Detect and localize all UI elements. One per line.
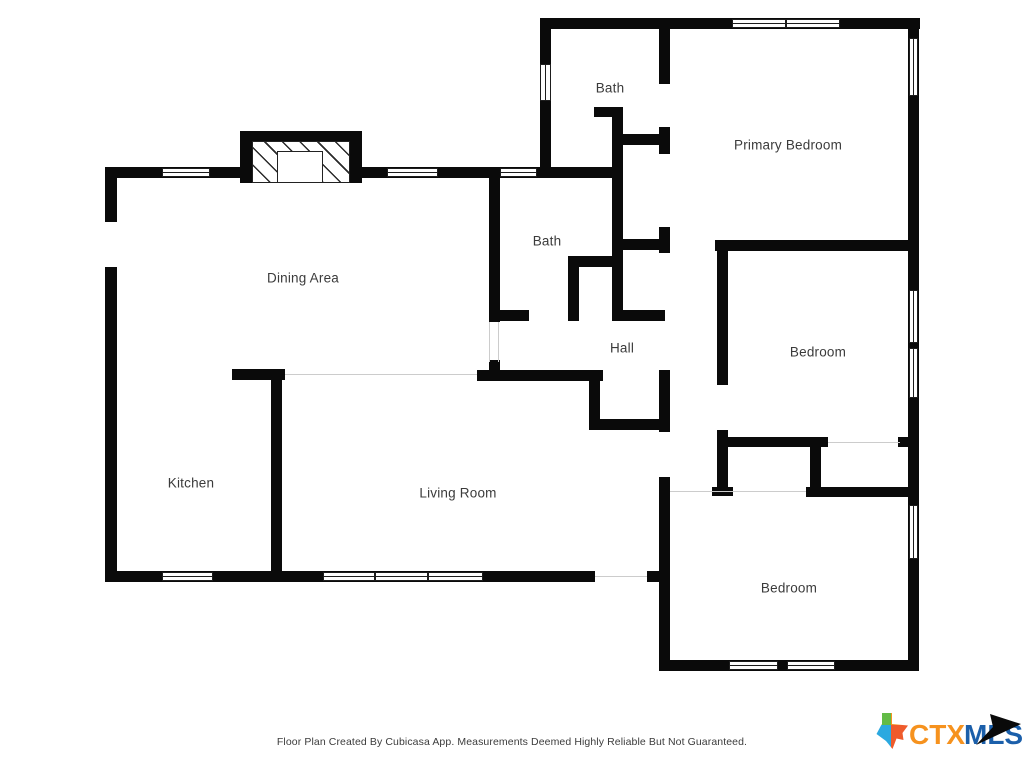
wall: [806, 487, 910, 497]
logo-ctx-text: CTX: [909, 719, 965, 750]
wall: [105, 267, 117, 582]
door-opening: [498, 322, 499, 362]
room-label: Living Room: [419, 486, 496, 501]
wall: [908, 18, 919, 671]
window-icon: [909, 505, 918, 559]
door-opening: [595, 576, 647, 577]
room-label: Bath: [533, 234, 562, 249]
floorplan-canvas: BathPrimary BedroomDining AreaBathHallBe…: [0, 0, 1024, 768]
window-icon: [428, 572, 483, 581]
ctxmls-logo-graphic: CTX MLS: [872, 708, 1022, 760]
fireplace-frame-left: [240, 131, 252, 183]
window-icon: [909, 348, 918, 398]
window-icon: [729, 661, 778, 670]
window-icon: [909, 38, 918, 96]
wall: [589, 419, 668, 430]
wall: [715, 240, 910, 251]
room-label: Kitchen: [168, 476, 214, 491]
door-opening: [489, 322, 490, 362]
room-label: Bedroom: [790, 345, 846, 360]
wall: [659, 18, 670, 84]
window-icon: [732, 19, 786, 28]
room-label: Bath: [596, 81, 625, 96]
room-label: Primary Bedroom: [734, 138, 842, 153]
texas-state-icon: [872, 708, 910, 751]
wall: [105, 167, 117, 222]
room-label: Hall: [610, 341, 634, 356]
window-icon: [162, 168, 210, 177]
room-label: Bedroom: [761, 581, 817, 596]
window-icon: [375, 572, 428, 581]
wall: [540, 18, 920, 29]
door-opening: [828, 442, 900, 443]
wall: [489, 167, 500, 322]
disclaimer-text: Floor Plan Created By Cubicasa App. Meas…: [0, 736, 1024, 748]
window-icon: [786, 19, 840, 28]
door-opening: [670, 491, 806, 492]
wall: [659, 227, 670, 253]
fireplace-firebox: [277, 151, 323, 183]
window-icon: [787, 661, 835, 670]
window-icon: [387, 168, 438, 177]
wall: [477, 370, 603, 381]
wall: [612, 107, 623, 321]
window-icon: [162, 572, 213, 581]
wall: [612, 310, 665, 321]
window-icon: [323, 572, 375, 581]
wall: [659, 477, 670, 671]
wall: [271, 369, 282, 582]
window-icon: [909, 290, 918, 343]
wall: [489, 310, 529, 321]
door-opening: [285, 374, 477, 375]
wall: [647, 571, 660, 582]
wall: [621, 134, 661, 145]
window-icon: [540, 64, 551, 101]
window-icon: [500, 168, 537, 177]
wall: [810, 437, 821, 493]
ctxmls-logo: CTX MLS: [872, 708, 1022, 760]
fireplace-frame-right: [350, 131, 362, 183]
room-label: Dining Area: [267, 271, 339, 286]
wall: [717, 240, 728, 385]
wall: [568, 256, 579, 321]
